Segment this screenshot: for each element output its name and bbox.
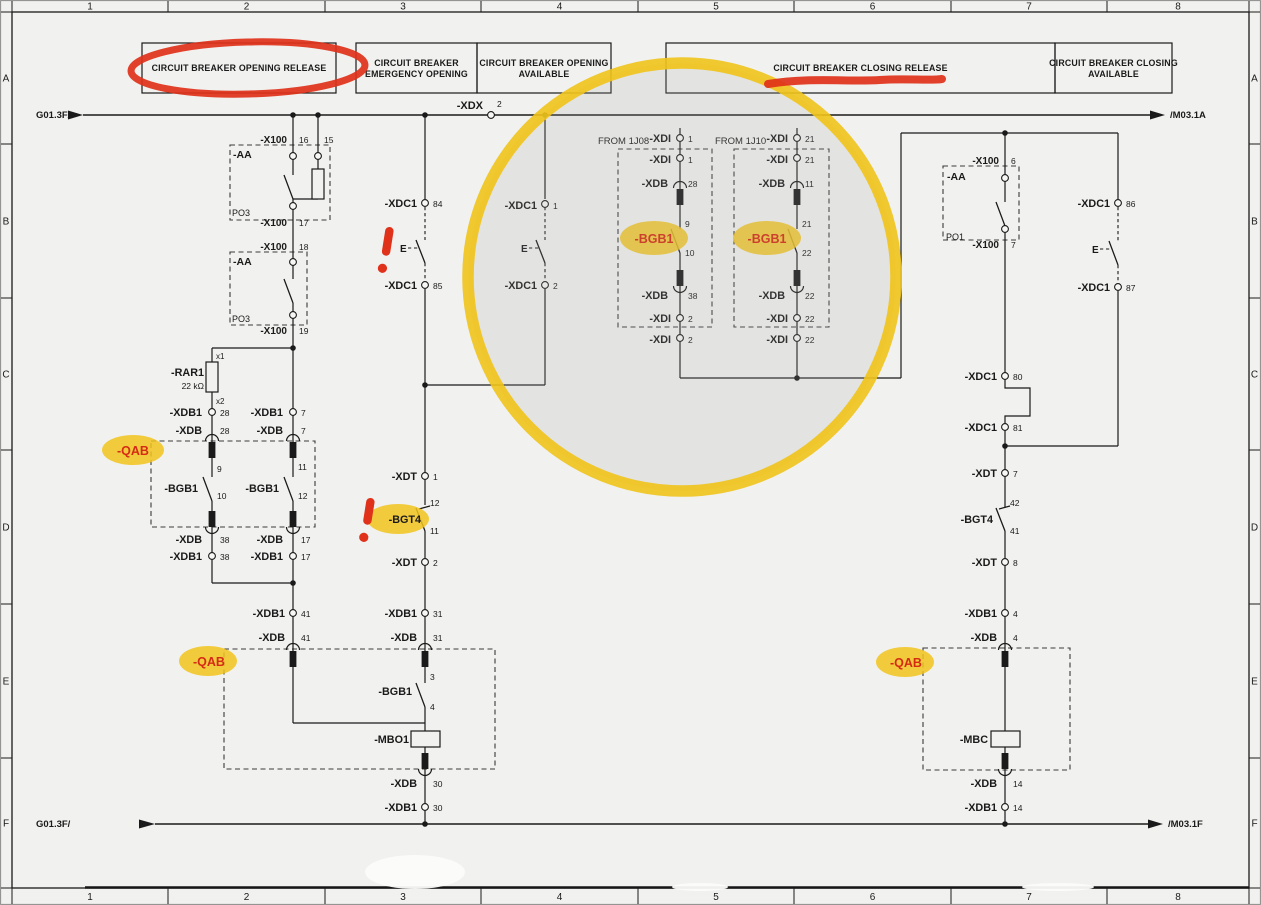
grid-col-label-top: 5 — [713, 2, 719, 13]
function-title-text: CIRCUIT BREAKER OPENING RELEASE — [152, 63, 327, 73]
component-boundary-box — [224, 649, 495, 769]
label-87: 87 — [1126, 283, 1136, 293]
function-title-text: CIRCUIT BREAKER CLOSING — [1049, 58, 1178, 68]
terminal-circle — [290, 153, 297, 160]
label-22-k-: 22 kΩ — [182, 381, 204, 391]
label--x100: -X100 — [260, 135, 287, 146]
junction-dot — [290, 112, 296, 118]
label-38: 38 — [220, 535, 230, 545]
terminal-circle — [1002, 424, 1009, 431]
label--rar1: -RAR1 — [171, 367, 204, 379]
exclamation-dot — [358, 532, 369, 543]
label-28: 28 — [220, 408, 230, 418]
label--x100: -X100 — [260, 326, 287, 337]
junction-dot — [315, 112, 321, 118]
label-17: 17 — [301, 552, 311, 562]
label--xdb1: -XDB1 — [251, 407, 283, 419]
function-title-text: CIRCUIT BREAKER OPENING — [479, 58, 608, 68]
label-e: E — [1092, 245, 1099, 256]
grid-col-label-top: 8 — [1175, 2, 1181, 13]
label--xdb: -XDB — [971, 632, 998, 644]
plug-pin-contact — [422, 753, 429, 769]
label--xdb: -XDB — [971, 778, 998, 790]
label-31: 31 — [433, 609, 443, 619]
label--aa: -AA — [233, 256, 252, 268]
grid-col-label-top: 3 — [400, 2, 406, 13]
terminal-circle — [209, 553, 216, 560]
junction-dot — [290, 345, 296, 351]
label--xdb1: -XDB1 — [965, 608, 997, 620]
plug-pin-contact — [209, 511, 216, 527]
grid-col-label-bottom: 3 — [400, 892, 406, 903]
label-2: 2 — [497, 99, 502, 109]
schematic-page: 1122334455667788AABBCCDDEEFF CIRCUIT BRE… — [0, 0, 1261, 905]
label--xdc1: -XDC1 — [965, 422, 997, 434]
label--xdc1: -XDC1 — [1078, 282, 1110, 294]
label--xdb: -XDB — [391, 778, 418, 790]
label-7: 7 — [1013, 469, 1018, 479]
label-6: 6 — [1011, 156, 1016, 166]
label--xdb1: -XDB1 — [170, 551, 202, 563]
label-7: 7 — [301, 408, 306, 418]
junction-dot — [1002, 821, 1008, 827]
label--xdc1: -XDC1 — [385, 280, 417, 292]
grid-col-label-bottom: 6 — [870, 892, 876, 903]
terminal-circle — [1002, 175, 1009, 182]
function-title-text: CIRCUIT BREAKER CLOSING RELEASE — [773, 63, 947, 73]
label-41: 41 — [1010, 526, 1020, 536]
label--xdb: -XDB — [391, 632, 418, 644]
label-4: 4 — [1013, 633, 1018, 643]
switch-contact-tick — [419, 506, 430, 509]
bus-reference-label: /M03.1A — [1170, 110, 1206, 121]
label--mbc: -MBC — [960, 734, 988, 746]
label--qab: -QAB — [117, 444, 149, 458]
label--bgt4: -BGT4 — [389, 514, 421, 526]
grid-row-label-left: A — [3, 74, 10, 85]
label--xdb1: -XDB1 — [253, 608, 285, 620]
label-10: 10 — [217, 491, 227, 501]
grid-col-label-top: 1 — [87, 2, 93, 13]
function-title-text: CIRCUIT BREAKER — [374, 58, 459, 68]
grid-row-label-right: C — [1251, 370, 1258, 381]
function-title-text: EMERGENCY OPENING — [365, 69, 468, 79]
terminal-circle — [422, 559, 429, 566]
label--bgt4: -BGT4 — [961, 514, 993, 526]
label--xdb1: -XDB1 — [385, 608, 417, 620]
label--mbo1: -MBO1 — [374, 734, 409, 746]
label--qab: -QAB — [193, 655, 225, 669]
label-81: 81 — [1013, 423, 1023, 433]
junction-dot — [422, 821, 428, 827]
label--x100: -X100 — [972, 156, 999, 167]
annotation-exclamation — [377, 226, 394, 274]
label-17: 17 — [299, 218, 309, 228]
bus-reference-label: G01.3F/ — [36, 819, 71, 830]
switch-contact — [203, 477, 212, 501]
label-18: 18 — [299, 242, 309, 252]
bus-reference-label: G01.3F/ — [36, 110, 71, 121]
label--bgb1: -BGB1 — [245, 483, 279, 495]
terminal-circle — [422, 804, 429, 811]
label-42: 42 — [1010, 498, 1020, 508]
label--x100: -X100 — [972, 240, 999, 251]
label-14: 14 — [1013, 803, 1023, 813]
terminal-circle — [488, 112, 495, 119]
grid-row-label-left: D — [2, 523, 9, 534]
exclamation-bar — [381, 226, 394, 256]
label-1: 1 — [433, 472, 438, 482]
switch-contact — [284, 175, 293, 199]
grid-col-label-bottom: 5 — [713, 892, 719, 903]
switch-contact — [996, 202, 1005, 226]
terminal-circle — [1002, 610, 1009, 617]
label-4: 4 — [1013, 609, 1018, 619]
label--xdt: -XDT — [392, 557, 418, 569]
label--aa: -AA — [947, 171, 966, 183]
label-16: 16 — [299, 135, 309, 145]
junction-dot — [422, 382, 428, 388]
label-12: 12 — [430, 498, 440, 508]
label--xdt: -XDT — [972, 468, 998, 480]
grid-row-label-right: B — [1251, 217, 1258, 228]
terminal-circle — [422, 200, 429, 207]
label-28: 28 — [220, 426, 230, 436]
schematic-canvas: 1122334455667788AABBCCDDEEFF CIRCUIT BRE… — [0, 0, 1261, 905]
bus-arrow-icon — [1148, 820, 1163, 829]
terminal-circle — [1115, 284, 1122, 291]
label--x100: -X100 — [260, 242, 287, 253]
label-41: 41 — [301, 609, 311, 619]
label-x2: x2 — [216, 397, 225, 406]
grid-row-label-left: F — [3, 819, 9, 830]
terminal-circle — [290, 610, 297, 617]
label--xdb1: -XDB1 — [170, 407, 202, 419]
junction-dot — [290, 580, 296, 586]
plug-pin-contact — [290, 442, 297, 458]
label-17: 17 — [301, 535, 311, 545]
label-31: 31 — [433, 633, 443, 643]
function-title-text: AVAILABLE — [519, 69, 570, 79]
coil-mbo1 — [411, 731, 440, 747]
terminal-circle — [290, 409, 297, 416]
label-12: 12 — [298, 491, 308, 501]
label-19: 19 — [299, 326, 309, 336]
label--xdb1: -XDB1 — [965, 802, 997, 814]
label--qab: -QAB — [890, 656, 922, 670]
label-38: 38 — [220, 552, 230, 562]
label-3: 3 — [430, 672, 435, 682]
grid-col-label-bottom: 4 — [557, 892, 563, 903]
grid-row-label-left: B — [3, 217, 10, 228]
grid-row-label-left: C — [2, 370, 9, 381]
switch-contact — [1109, 241, 1118, 265]
coil-mbc — [991, 731, 1020, 747]
label--xdc1: -XDC1 — [1078, 198, 1110, 210]
bus-reference-label: /M03.1F — [1168, 819, 1203, 830]
label--xdc1: -XDC1 — [385, 198, 417, 210]
label-14: 14 — [1013, 779, 1023, 789]
label-2: 2 — [433, 558, 438, 568]
label--xdt: -XDT — [972, 557, 998, 569]
grid-row-label-right: D — [1251, 523, 1258, 534]
terminal-circle — [209, 409, 216, 416]
annotation-smudge — [672, 883, 728, 891]
plug-pin-contact — [209, 442, 216, 458]
label-15: 15 — [324, 135, 334, 145]
label--xdb1: -XDB1 — [251, 551, 283, 563]
terminal-circle — [1002, 804, 1009, 811]
junction-dot — [1002, 443, 1008, 449]
component-boundary-box — [923, 648, 1070, 770]
annotation-red-underline — [768, 79, 942, 84]
plug-pin-contact — [422, 651, 429, 667]
label-e: E — [400, 244, 407, 255]
grid-col-label-bottom: 8 — [1175, 892, 1181, 903]
plug-pin-contact — [1002, 753, 1009, 769]
switch-contact — [416, 683, 425, 707]
label--xdb: -XDB — [257, 425, 284, 437]
label--xdb: -XDB — [176, 534, 203, 546]
plug-pin-contact — [1002, 651, 1009, 667]
label--xdt: -XDT — [392, 471, 418, 483]
label-7: 7 — [1011, 240, 1016, 250]
switch-contact — [284, 279, 293, 303]
label-86: 86 — [1126, 199, 1136, 209]
junction-dot — [1002, 130, 1008, 136]
grid-col-label-top: 4 — [557, 2, 563, 13]
function-title-text: AVAILABLE — [1088, 69, 1139, 79]
function-title-box — [1055, 43, 1172, 93]
bus-arrow-icon — [139, 820, 155, 829]
terminal-circle — [422, 473, 429, 480]
grid-col-label-bottom: 7 — [1026, 892, 1032, 903]
label--bgb1: -BGB1 — [378, 686, 412, 698]
resistor-symbol — [206, 362, 218, 392]
switch-contact — [996, 508, 1005, 531]
label-85: 85 — [433, 281, 443, 291]
annotation-smudge — [365, 855, 465, 889]
label--xdb: -XDB — [257, 534, 284, 546]
exclamation-dot — [377, 263, 388, 274]
plug-pin-contact — [290, 651, 297, 667]
grid-col-label-top: 2 — [244, 2, 250, 13]
terminal-circle — [422, 282, 429, 289]
label-11: 11 — [430, 526, 439, 536]
grid-col-label-top: 7 — [1026, 2, 1032, 13]
grid-row-label-right: E — [1251, 677, 1258, 688]
junction-dot — [422, 112, 428, 118]
annotation-smudge — [1022, 883, 1094, 891]
bus-arrow-icon — [1150, 111, 1165, 120]
label-po1: PO1 — [946, 232, 964, 242]
label-84: 84 — [433, 199, 443, 209]
terminal-circle — [422, 610, 429, 617]
label--xdc1: -XDC1 — [965, 371, 997, 383]
label-11: 11 — [298, 462, 307, 472]
grid-row-label-right: F — [1251, 819, 1257, 830]
label-po3: PO3 — [232, 208, 250, 218]
label-x1: x1 — [216, 352, 225, 361]
plug-pin-contact — [290, 511, 297, 527]
label--xdb1: -XDB1 — [385, 802, 417, 814]
label--xdb: -XDB — [259, 632, 286, 644]
label-po3: PO3 — [232, 314, 250, 324]
label--xdb: -XDB — [176, 425, 203, 437]
review-annotations — [130, 39, 1094, 891]
terminal-circle — [1002, 226, 1009, 233]
label--x100: -X100 — [260, 218, 287, 229]
wire — [1005, 382, 1030, 508]
terminal-circle — [1002, 470, 1009, 477]
switch-contact — [416, 240, 425, 263]
label-80: 80 — [1013, 372, 1023, 382]
label-30: 30 — [433, 779, 443, 789]
grid-row-label-right: A — [1251, 74, 1258, 85]
label--bgb1: -BGB1 — [164, 483, 198, 495]
terminal-circle — [315, 153, 322, 160]
terminal-circle — [290, 312, 297, 319]
switch-contact — [284, 477, 293, 501]
grid-col-label-bottom: 2 — [244, 892, 250, 903]
grid-col-label-bottom: 1 — [87, 892, 93, 903]
resistor-symbol — [312, 169, 324, 199]
function-title-box — [356, 43, 477, 93]
label-4: 4 — [430, 702, 435, 712]
terminal-circle — [1002, 559, 1009, 566]
terminal-circle — [290, 553, 297, 560]
grid-row-label-left: E — [3, 677, 10, 688]
label-8: 8 — [1013, 558, 1018, 568]
label--xdx: -XDX — [457, 100, 484, 112]
label-7: 7 — [301, 426, 306, 436]
label-9: 9 — [217, 464, 222, 474]
label-41: 41 — [301, 633, 311, 643]
label--aa: -AA — [233, 149, 252, 161]
terminal-circle — [1115, 200, 1122, 207]
terminal-circle — [290, 259, 297, 266]
terminal-circle — [1002, 373, 1009, 380]
grid-col-label-top: 6 — [870, 2, 876, 13]
label-30: 30 — [433, 803, 443, 813]
terminal-circle — [290, 203, 297, 210]
